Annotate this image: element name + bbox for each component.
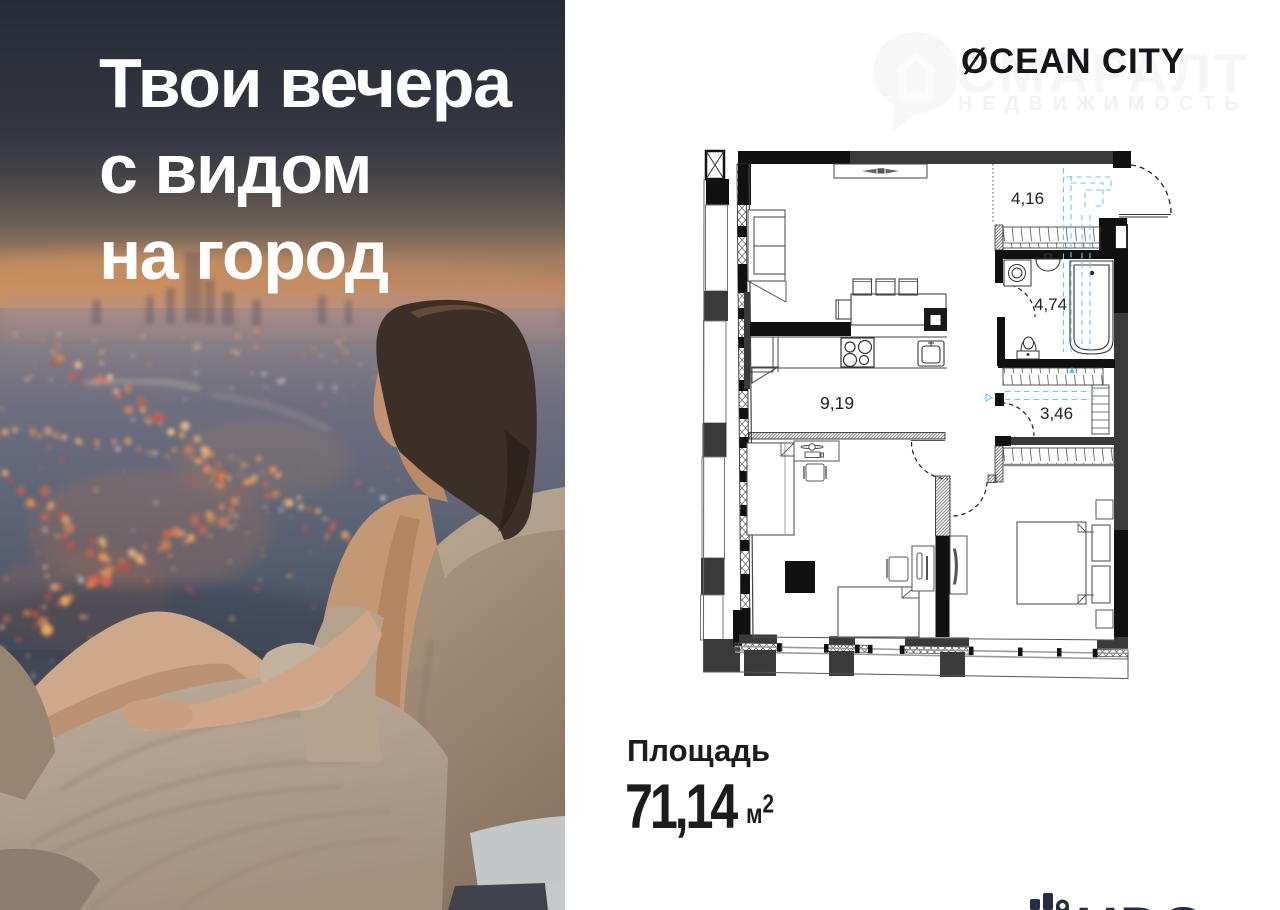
svg-text:Твои вечера: Твои вечера [99, 44, 513, 122]
svg-text:НЕДВИЖИМОСТЬ: НЕДВИЖИМОСТЬ [958, 93, 1248, 115]
svg-text:3,46: 3,46 [1040, 404, 1073, 423]
svg-text:с видом: с видом [99, 130, 371, 208]
svg-text:4,74: 4,74 [1034, 295, 1067, 314]
svg-text:4,16: 4,16 [1011, 189, 1044, 208]
svg-text:на город: на город [99, 216, 389, 294]
svg-text:UDS: UDS [1076, 896, 1204, 910]
svg-text:9,19: 9,19 [820, 393, 854, 413]
